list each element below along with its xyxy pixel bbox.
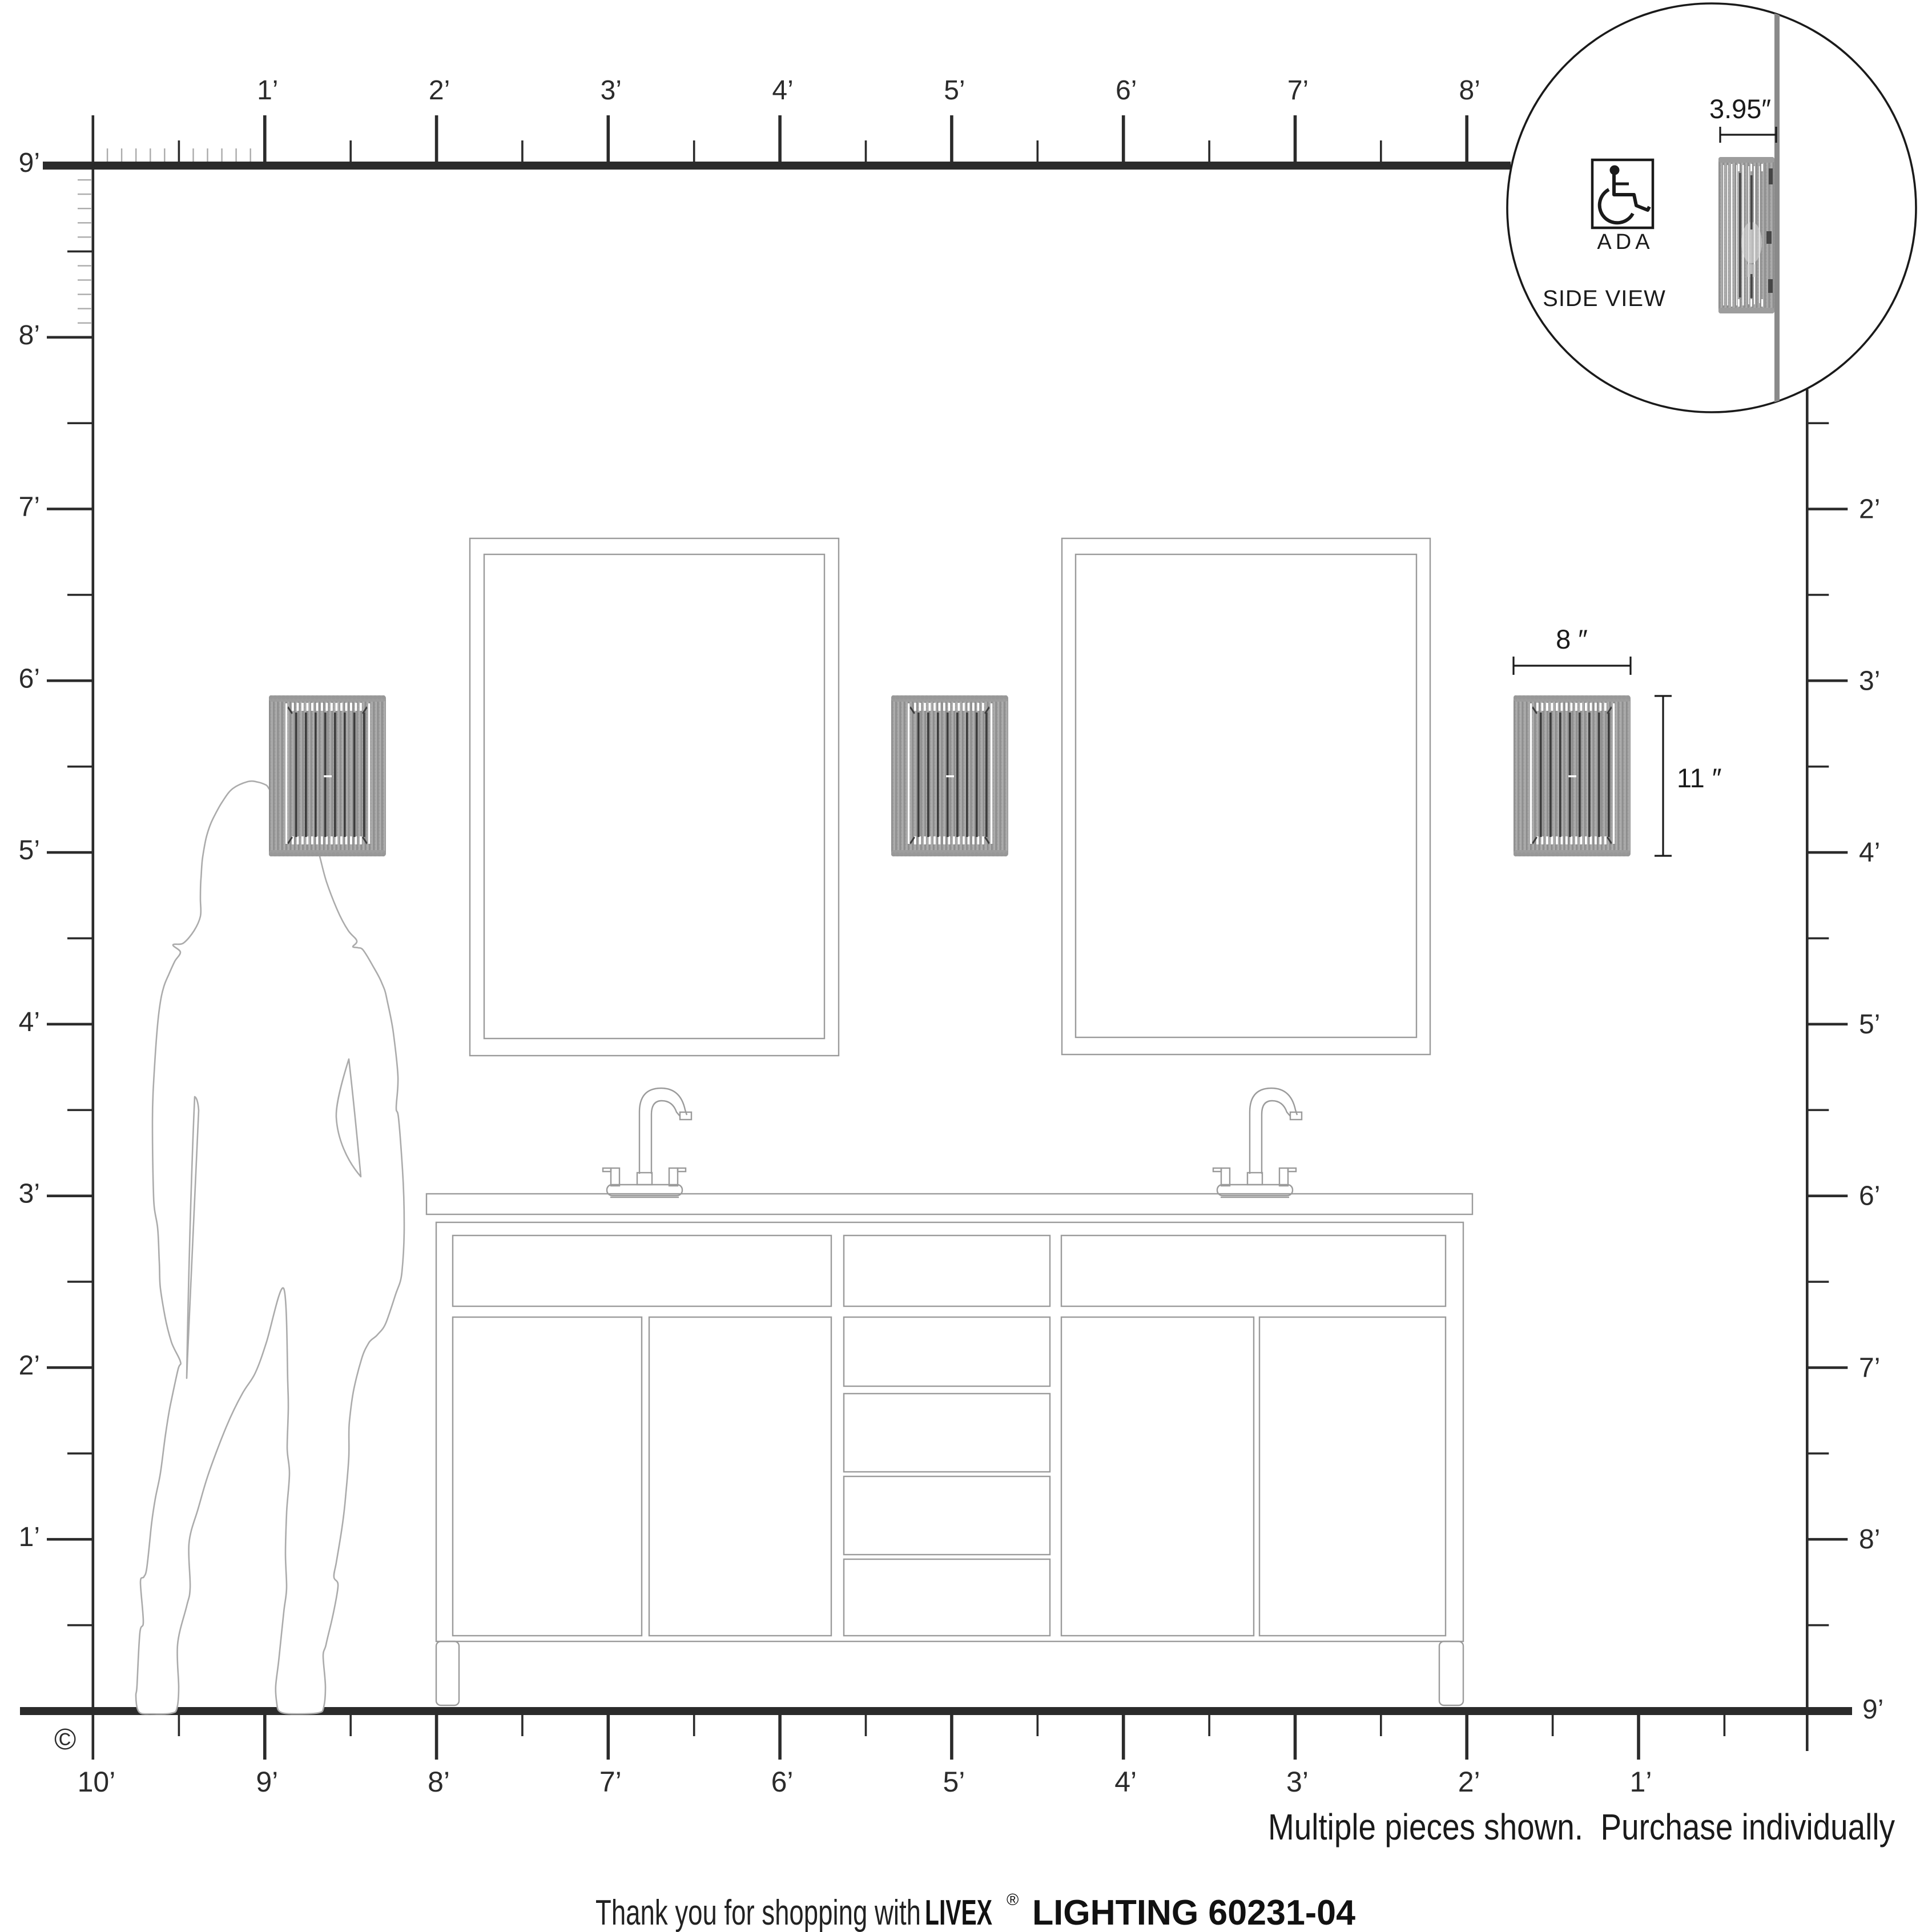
- svg-text:7’: 7’: [1859, 1353, 1880, 1383]
- svg-text:6’: 6’: [1859, 1181, 1880, 1211]
- svg-text:8’: 8’: [1459, 75, 1480, 106]
- svg-text:8’: 8’: [19, 320, 40, 351]
- svg-text:6’: 6’: [19, 663, 40, 694]
- svg-text:7’: 7’: [19, 492, 40, 522]
- svg-text:LIVEX: LIVEX: [925, 1893, 992, 1932]
- svg-text:4’: 4’: [1114, 1766, 1137, 1798]
- svg-text:9’: 9’: [256, 1766, 278, 1798]
- svg-text:5’: 5’: [943, 1766, 965, 1798]
- svg-text:7’: 7’: [599, 1766, 622, 1798]
- svg-text:11 ″: 11 ″: [1677, 763, 1722, 793]
- svg-text:SIDE VIEW: SIDE VIEW: [1543, 286, 1666, 311]
- svg-text:Thank you for shopping with: Thank you for shopping with: [595, 1893, 921, 1932]
- svg-text:ADA: ADA: [1597, 230, 1653, 254]
- svg-text:6’: 6’: [1116, 75, 1137, 106]
- svg-text:LIGHTING 60231-04: LIGHTING 60231-04: [1032, 1893, 1356, 1932]
- svg-text:2’: 2’: [1458, 1766, 1480, 1798]
- svg-text:3’: 3’: [601, 75, 622, 106]
- svg-text:2’: 2’: [19, 1350, 40, 1380]
- svg-text:1’: 1’: [19, 1522, 40, 1552]
- svg-text:5’: 5’: [19, 835, 40, 866]
- svg-text:1’: 1’: [257, 75, 278, 106]
- svg-text:Multiple pieces shown. Purcha: Multiple pieces shown. Purchase individu…: [1268, 1806, 1895, 1848]
- svg-text:4’: 4’: [19, 1007, 40, 1037]
- svg-text:3.95″: 3.95″: [1709, 94, 1771, 124]
- svg-text:10’: 10’: [78, 1766, 116, 1798]
- svg-text:1’: 1’: [1630, 1766, 1652, 1798]
- svg-text:5’: 5’: [944, 75, 965, 106]
- svg-text:8’: 8’: [1859, 1524, 1880, 1555]
- svg-text:3’: 3’: [19, 1179, 40, 1209]
- svg-text:3’: 3’: [1286, 1766, 1309, 1798]
- svg-text:®: ®: [1007, 1891, 1019, 1909]
- svg-text:6’: 6’: [771, 1766, 794, 1798]
- svg-text:9’: 9’: [19, 148, 40, 178]
- svg-text:4’: 4’: [772, 75, 793, 106]
- svg-text:5’: 5’: [1859, 1009, 1880, 1040]
- svg-text:8’: 8’: [428, 1766, 450, 1798]
- svg-text:4’: 4’: [1859, 838, 1880, 868]
- svg-text:8 ″: 8 ″: [1556, 624, 1588, 654]
- svg-text:9’: 9’: [1862, 1694, 1883, 1725]
- svg-text:3’: 3’: [1859, 666, 1880, 696]
- svg-text:2’: 2’: [429, 75, 450, 106]
- svg-text:©: ©: [54, 1723, 76, 1756]
- svg-text:7’: 7’: [1287, 75, 1309, 106]
- svg-text:2’: 2’: [1859, 494, 1880, 525]
